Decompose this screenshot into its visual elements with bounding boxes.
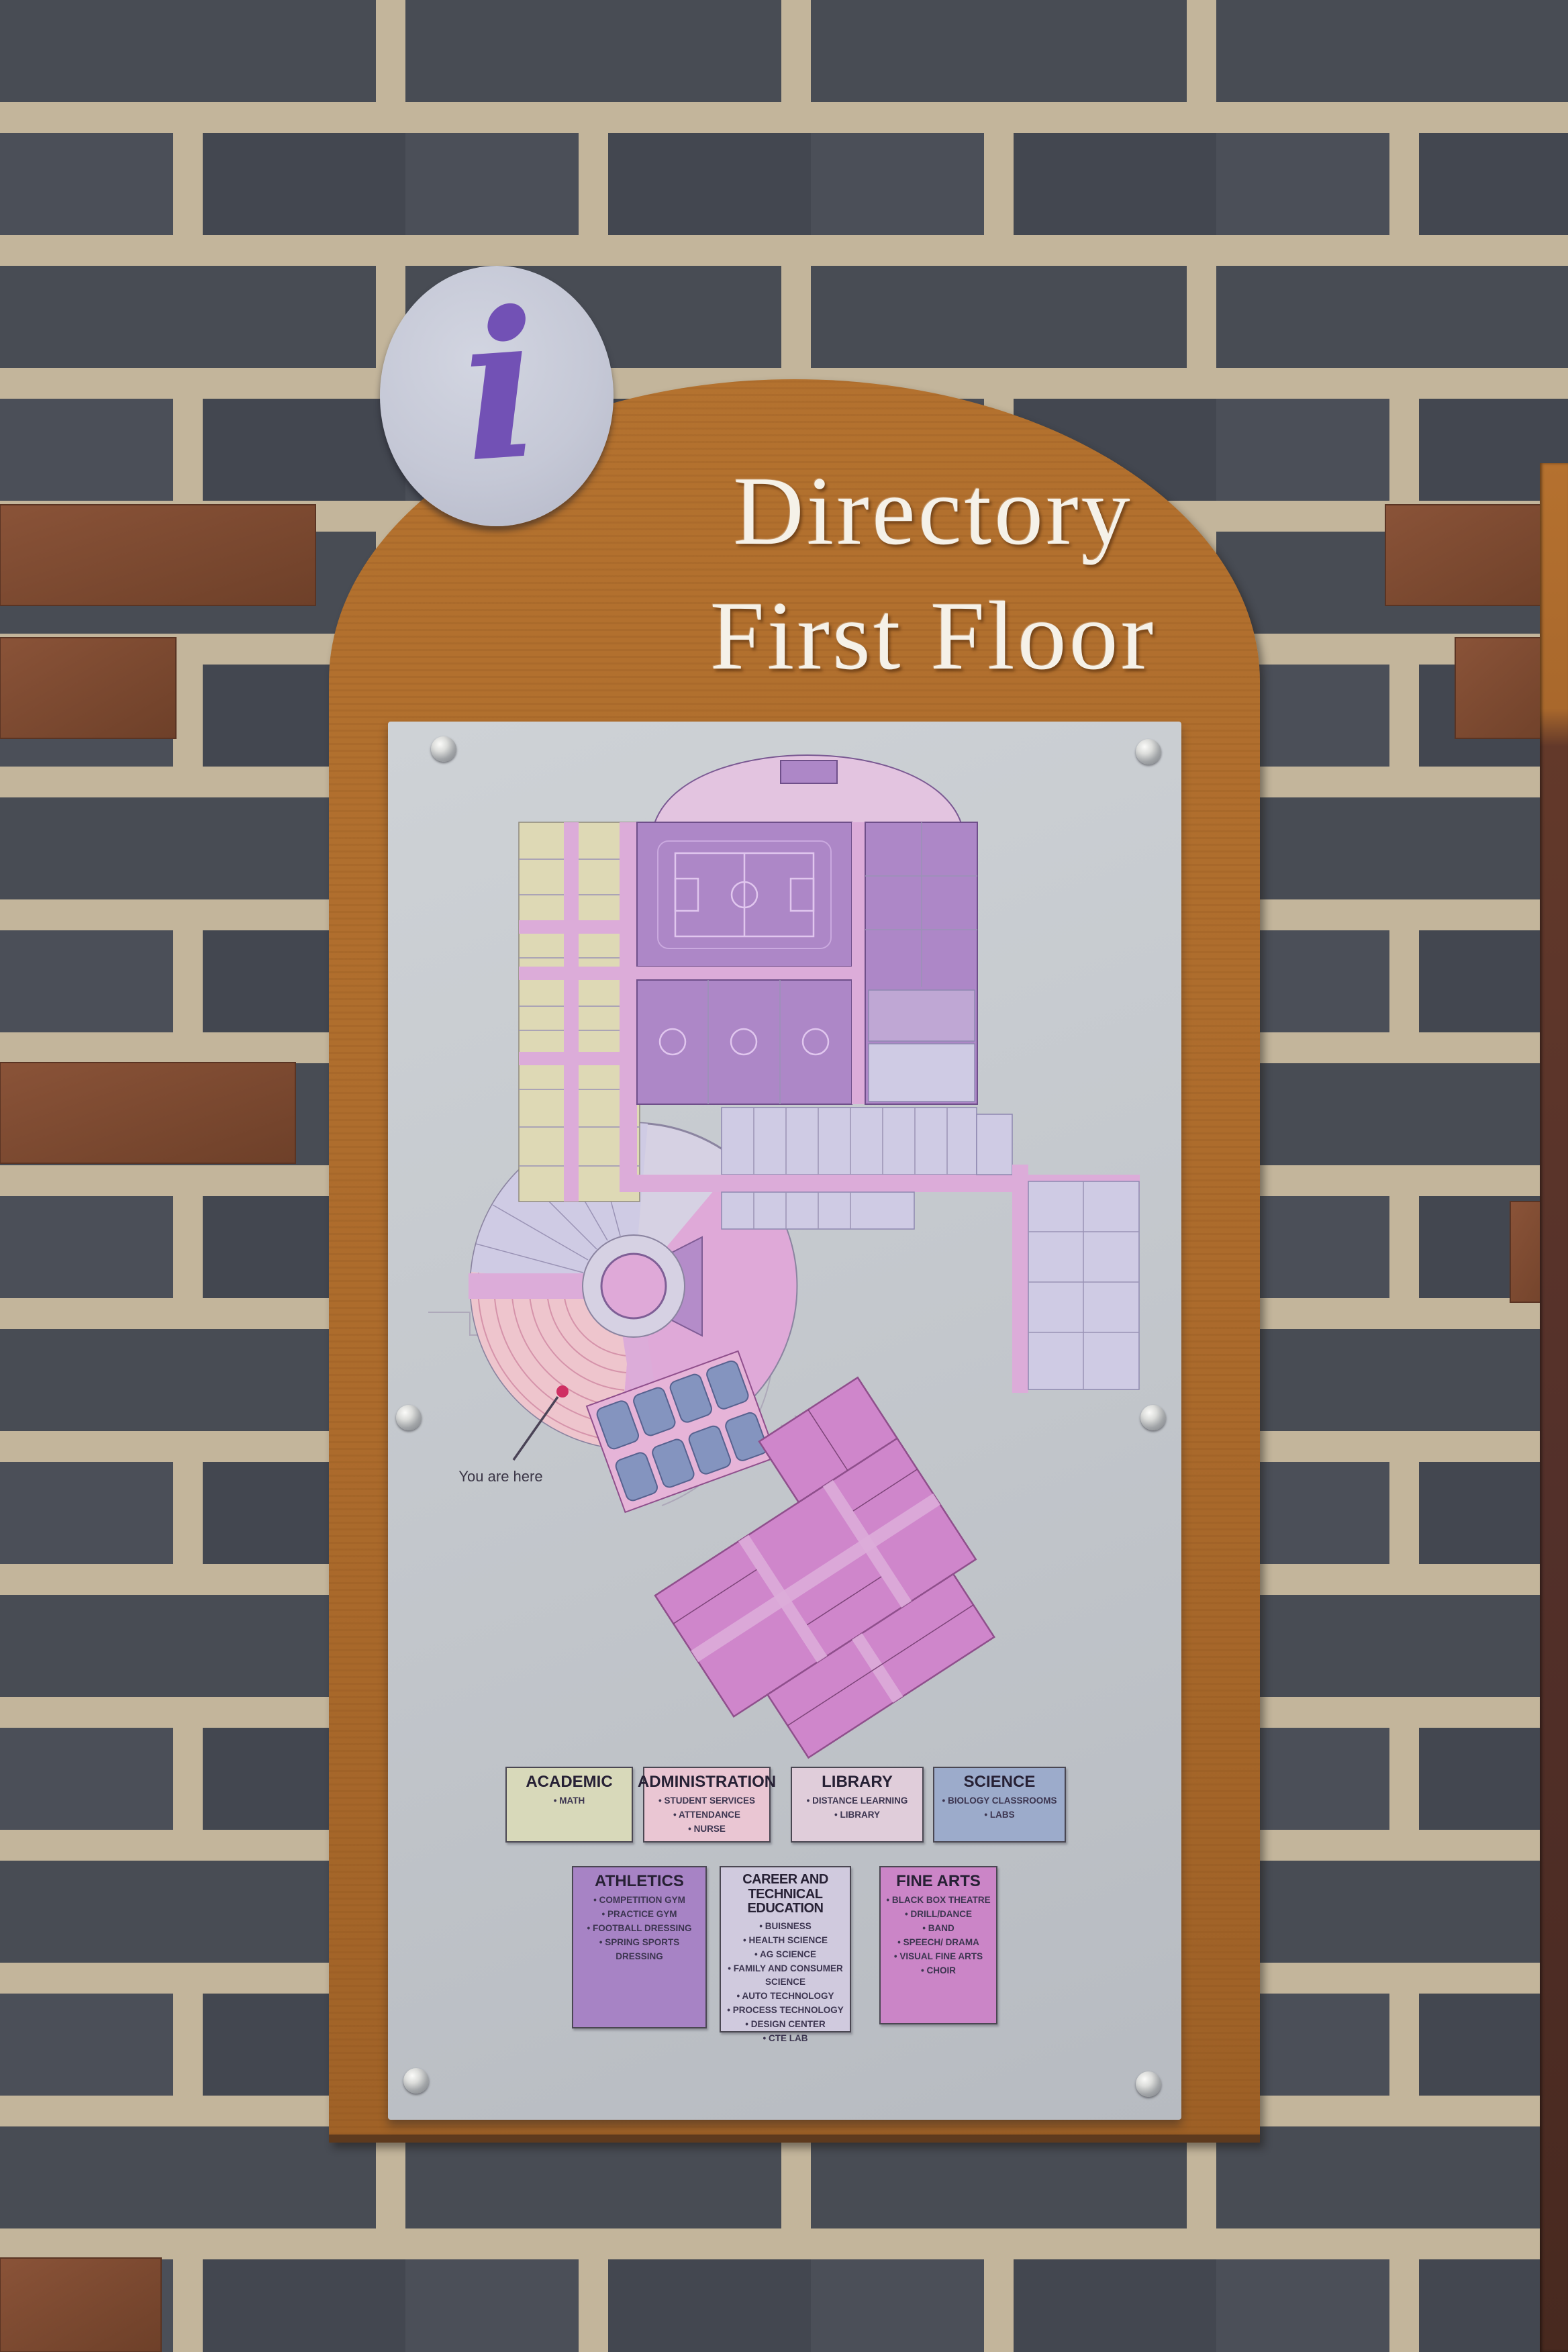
legend-item: STUDENT SERVICES	[658, 1794, 755, 1808]
legend-item: DESIGN CENTER	[724, 2018, 847, 2032]
you-are-here-label: You are here	[458, 1468, 542, 1485]
legend-item: DRILL/DANCE	[886, 1908, 990, 1922]
legend-library: LIBRARY DISTANCE LEARNING LIBRARY	[791, 1767, 924, 1843]
legend-item: ATTENDANCE	[658, 1808, 755, 1822]
legend-item: FAMILY AND CONSUMER SCIENCE	[724, 1962, 847, 1990]
screw-middle-right	[1140, 1405, 1166, 1430]
screw-top-left	[431, 736, 456, 762]
legend-item: SPEECH/ DRAMA	[886, 1936, 990, 1950]
photo-of-directory-sign: i Directory First Floor	[0, 0, 1568, 2352]
legend-item: BIOLOGY CLASSROOMS	[942, 1794, 1057, 1808]
legend-item: SPRING SPORTS DRESSING	[576, 1936, 703, 1964]
legend-athletics-title: ATHLETICS	[595, 1873, 684, 1890]
legend-item: CHOIR	[886, 1964, 990, 1978]
legend-library-title: LIBRARY	[822, 1773, 893, 1791]
legend-item: BAND	[886, 1922, 990, 1936]
legend-academic-title: ACADEMIC	[526, 1773, 612, 1791]
legend-item: PROCESS TECHNOLOGY	[724, 2004, 847, 2018]
legend-science-title: SCIENCE	[964, 1773, 1036, 1791]
screw-top-right	[1136, 739, 1161, 765]
title-line-2: First Floor	[651, 573, 1215, 698]
library-wing	[1012, 1165, 1139, 1393]
information-icon: i	[456, 283, 546, 489]
legend-fine-arts: FINE ARTS BLACK BOX THEATRE DRILL/DANCE …	[879, 1866, 997, 2024]
legend-item: MATH	[554, 1794, 585, 1808]
legend-fine-arts-title: FINE ARTS	[896, 1873, 981, 1890]
screw-bottom-left	[403, 2068, 429, 2094]
legend-career-technical: CAREER AND TECHNICAL EDUCATION BUISNESS …	[720, 1866, 851, 2032]
legend-item: LABS	[942, 1808, 1057, 1822]
main-corridor-vertical	[620, 822, 637, 1178]
legend-item: PRACTICE GYM	[576, 1908, 703, 1922]
title-line-1: Directory	[651, 448, 1215, 573]
screw-middle-left	[396, 1405, 422, 1430]
legend-item: FOOTBALL DRESSING	[576, 1922, 703, 1936]
screw-bottom-right	[1136, 2071, 1161, 2097]
legend-item: VISUAL FINE ARTS	[886, 1950, 990, 1964]
legend-item: NURSE	[658, 1822, 755, 1836]
legend-career-technical-title: CAREER AND TECHNICAL EDUCATION	[724, 1873, 847, 1916]
sign-title: Directory First Floor	[651, 448, 1215, 698]
legend-item: HEALTH SCIENCE	[724, 1934, 847, 1948]
legend-item: COMPETITION GYM	[576, 1894, 703, 1908]
adjacent-sign-edge	[1540, 463, 1568, 2352]
legend-academic: ACADEMIC MATH	[505, 1767, 633, 1843]
legend-administration: ADMINISTRATION STUDENT SERVICES ATTENDAN…	[643, 1767, 771, 1843]
legend-item: AG SCIENCE	[724, 1948, 847, 1962]
legend-item: BUISNESS	[724, 1920, 847, 1934]
legend-item: LIBRARY	[807, 1808, 908, 1822]
map-plate: You are here ACADEMIC MATH ADMINISTRATIO…	[388, 722, 1181, 2120]
legend-item: CTE LAB	[724, 2032, 847, 2046]
legend-item: DISTANCE LEARNING	[807, 1794, 908, 1808]
legend-athletics: ATHLETICS COMPETITION GYM PRACTICE GYM F…	[572, 1866, 707, 2028]
legend-item: AUTO TECHNOLOGY	[724, 1990, 847, 2004]
legend-item: BLACK BOX THEATRE	[886, 1894, 990, 1908]
legend-administration-title: ADMINISTRATION	[638, 1773, 776, 1791]
information-badge: i	[380, 266, 614, 526]
legend-science: SCIENCE BIOLOGY CLASSROOMS LABS	[933, 1767, 1066, 1843]
